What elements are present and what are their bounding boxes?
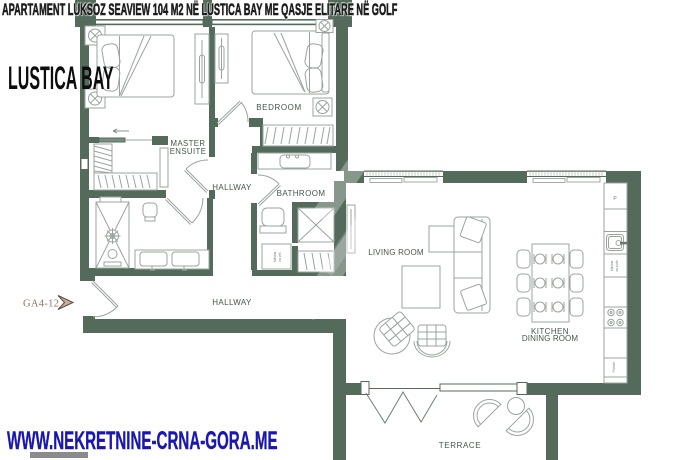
svg-text:Frižider: Frižider [612,361,616,373]
svg-text:TERRACE: TERRACE [439,441,481,450]
svg-text:ENSUITE: ENSUITE [170,147,207,156]
svg-text:DINING ROOM: DINING ROOM [522,334,578,343]
svg-text:Mašina: Mašina [273,252,277,263]
svg-text:HALLWAY: HALLWAY [212,298,252,307]
svg-text:LIVING ROOM: LIVING ROOM [368,248,424,257]
svg-text:GA4-12: GA4-12 [23,299,59,310]
svg-text:BATHROOM: BATHROOM [277,189,326,198]
svg-text:HALLWAY: HALLWAY [212,183,252,192]
svg-text:Mašina: Mašina [610,261,614,272]
svg-text:BEDROOM: BEDROOM [256,103,302,112]
svg-text:za suđe: za suđe [615,260,619,271]
svg-text:za veš: za veš [278,252,282,262]
